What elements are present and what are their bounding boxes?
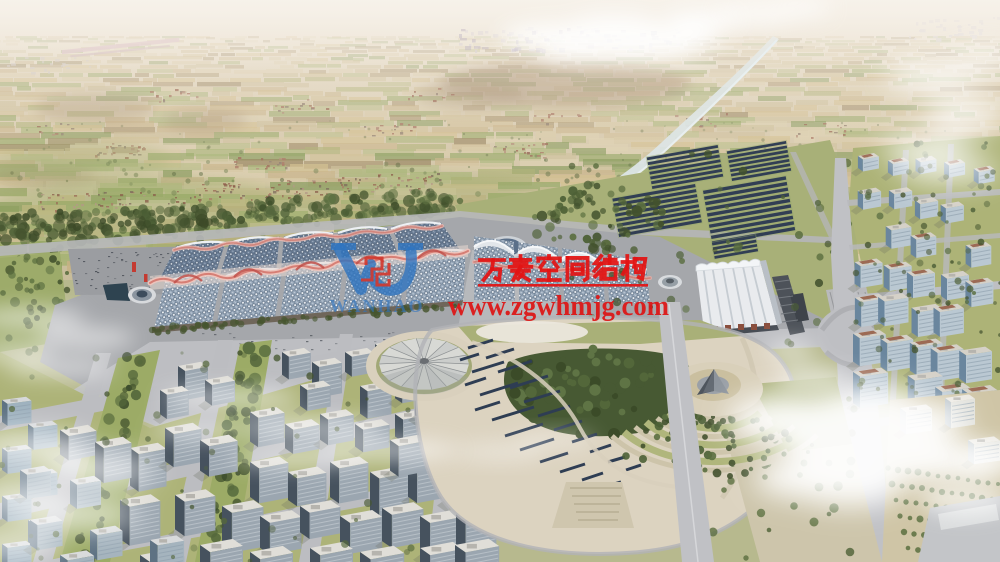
svg-text:www.zgwhmjg.com: www.zgwhmjg.com xyxy=(448,290,669,322)
svg-text:WANHAO: WANHAO xyxy=(329,296,424,316)
